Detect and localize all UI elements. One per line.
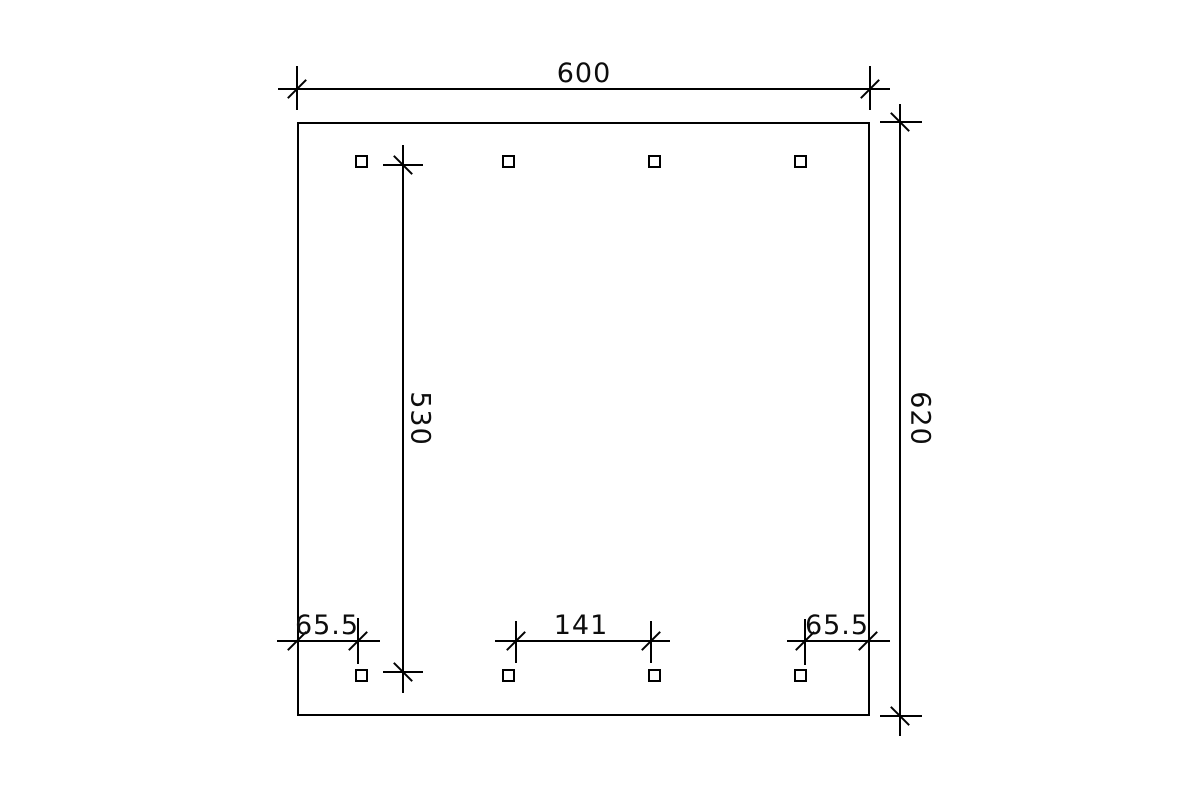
post-square bbox=[502, 155, 515, 168]
post-square bbox=[648, 155, 661, 168]
dim-600-label: 600 bbox=[524, 60, 644, 87]
post-square bbox=[648, 669, 661, 682]
post-square bbox=[355, 155, 368, 168]
dim-141-label: 141 bbox=[521, 612, 641, 639]
post-square bbox=[502, 669, 515, 682]
dim-530-label: 530 bbox=[407, 383, 434, 455]
post-square bbox=[794, 155, 807, 168]
post-square bbox=[794, 669, 807, 682]
dim-65-5-left-label: 65.5 bbox=[267, 612, 387, 639]
dim-620-label: 620 bbox=[907, 383, 934, 455]
dim-65-5-right-label: 65.5 bbox=[777, 612, 897, 639]
drawing-canvas: 600 620 530 65.5 141 65.5 bbox=[0, 0, 1200, 800]
post-square bbox=[355, 669, 368, 682]
dim-620-line bbox=[899, 104, 901, 736]
